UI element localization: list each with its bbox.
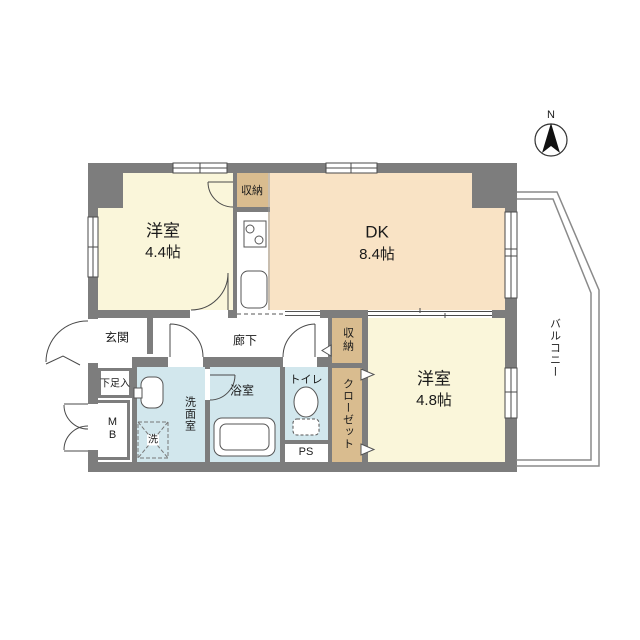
toilet-tank — [293, 419, 319, 435]
window-top-2 — [326, 163, 377, 173]
label-entrance: 玄関 — [105, 331, 129, 344]
door-toilet — [283, 324, 315, 357]
door-entrance-leaf — [46, 356, 80, 365]
label-balcony: バルコニー — [549, 318, 560, 378]
room-label-western-1-name: 洋室 — [146, 223, 180, 242]
stove — [244, 221, 266, 247]
window-right-dk — [505, 212, 517, 298]
storage-hall-arrow — [322, 345, 331, 356]
door-washroom — [170, 324, 203, 357]
door-storage-top — [208, 182, 233, 207]
label-hallway: 廊下 — [233, 334, 257, 347]
label-storage-hall: 収納 — [342, 327, 353, 353]
label-shoe-cabinet: 下足入 — [100, 379, 130, 390]
plan-linework — [0, 0, 640, 640]
window-left — [88, 217, 98, 277]
toilet-bowl — [294, 387, 318, 417]
bathtub-inner — [220, 424, 269, 450]
room-label-western-2-name: 洋室 — [417, 371, 451, 390]
label-compass-north: N — [547, 109, 555, 121]
stove-burner-1 — [246, 225, 254, 233]
room-label-western-2-size: 4.8帖 — [416, 393, 452, 410]
door-western-1 — [191, 273, 228, 310]
kitchen-sink — [241, 271, 267, 308]
closet-arrow-bottom — [361, 444, 374, 455]
label-washroom: 洗面室 — [184, 396, 195, 432]
room-label-dk-name: DK — [365, 224, 389, 243]
room-label-dk-size: 8.4帖 — [359, 247, 395, 264]
label-washing-machine: 洗 — [147, 435, 159, 446]
window-right-western-2 — [505, 368, 517, 418]
label-toilet: トイレ — [290, 374, 323, 386]
compass — [535, 123, 567, 156]
room-label-western-1-size: 4.4帖 — [145, 245, 181, 262]
stove-burner-2 — [255, 236, 263, 244]
label-bathroom: 浴室 — [230, 384, 254, 397]
label-meter-box: MB — [107, 416, 118, 442]
washbasin — [141, 377, 163, 408]
label-storage-top: 収納 — [241, 185, 263, 197]
door-meter-box — [64, 404, 88, 451]
window-top-1 — [173, 163, 227, 173]
label-closet: クローゼット — [342, 378, 353, 450]
floor-plan: 洋室 4.4帖 DK 8.4帖 洋室 4.8帖 収納 収納 クローゼット 玄関 … — [0, 0, 640, 640]
washbasin-tap — [134, 388, 142, 398]
label-pipe-space: PS — [299, 446, 314, 458]
closet-arrow-top — [361, 369, 374, 380]
door-entrance-arc — [46, 321, 88, 362]
